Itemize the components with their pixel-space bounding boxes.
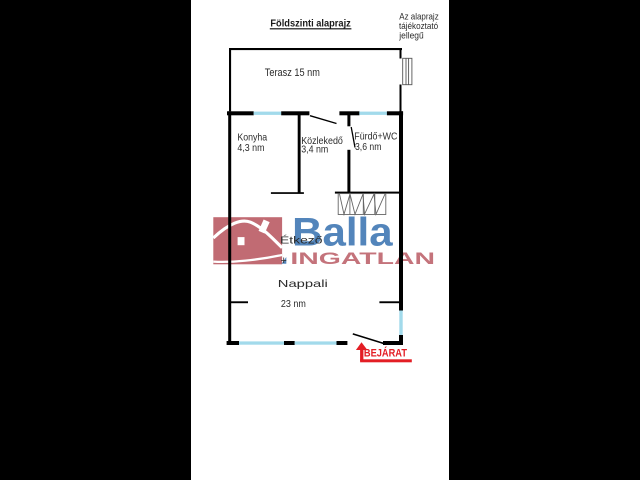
svg-text:Földszinti alaprajz: Földszinti alaprajz	[270, 19, 350, 30]
svg-text:Fürdő+WC: Fürdő+WC	[354, 132, 398, 143]
svg-text:Balla: Balla	[292, 210, 393, 254]
svg-text:jellegű: jellegű	[398, 30, 423, 41]
svg-text:3,4 nm: 3,4 nm	[301, 145, 328, 156]
svg-text:23 nm: 23 nm	[281, 299, 306, 310]
svg-text:Terasz 15 nm: Terasz 15 nm	[265, 67, 320, 79]
svg-text:Nappali: Nappali	[278, 279, 328, 290]
svg-text:Étkező: Étkező	[280, 233, 323, 246]
svg-text:BEJÁRAT: BEJÁRAT	[364, 346, 407, 359]
svg-text:4,3 nm: 4,3 nm	[237, 143, 264, 154]
svg-text:3,6 nm: 3,6 nm	[355, 142, 381, 153]
svg-text:INGATLAN: INGATLAN	[290, 250, 435, 268]
svg-text:+: +	[281, 255, 287, 267]
